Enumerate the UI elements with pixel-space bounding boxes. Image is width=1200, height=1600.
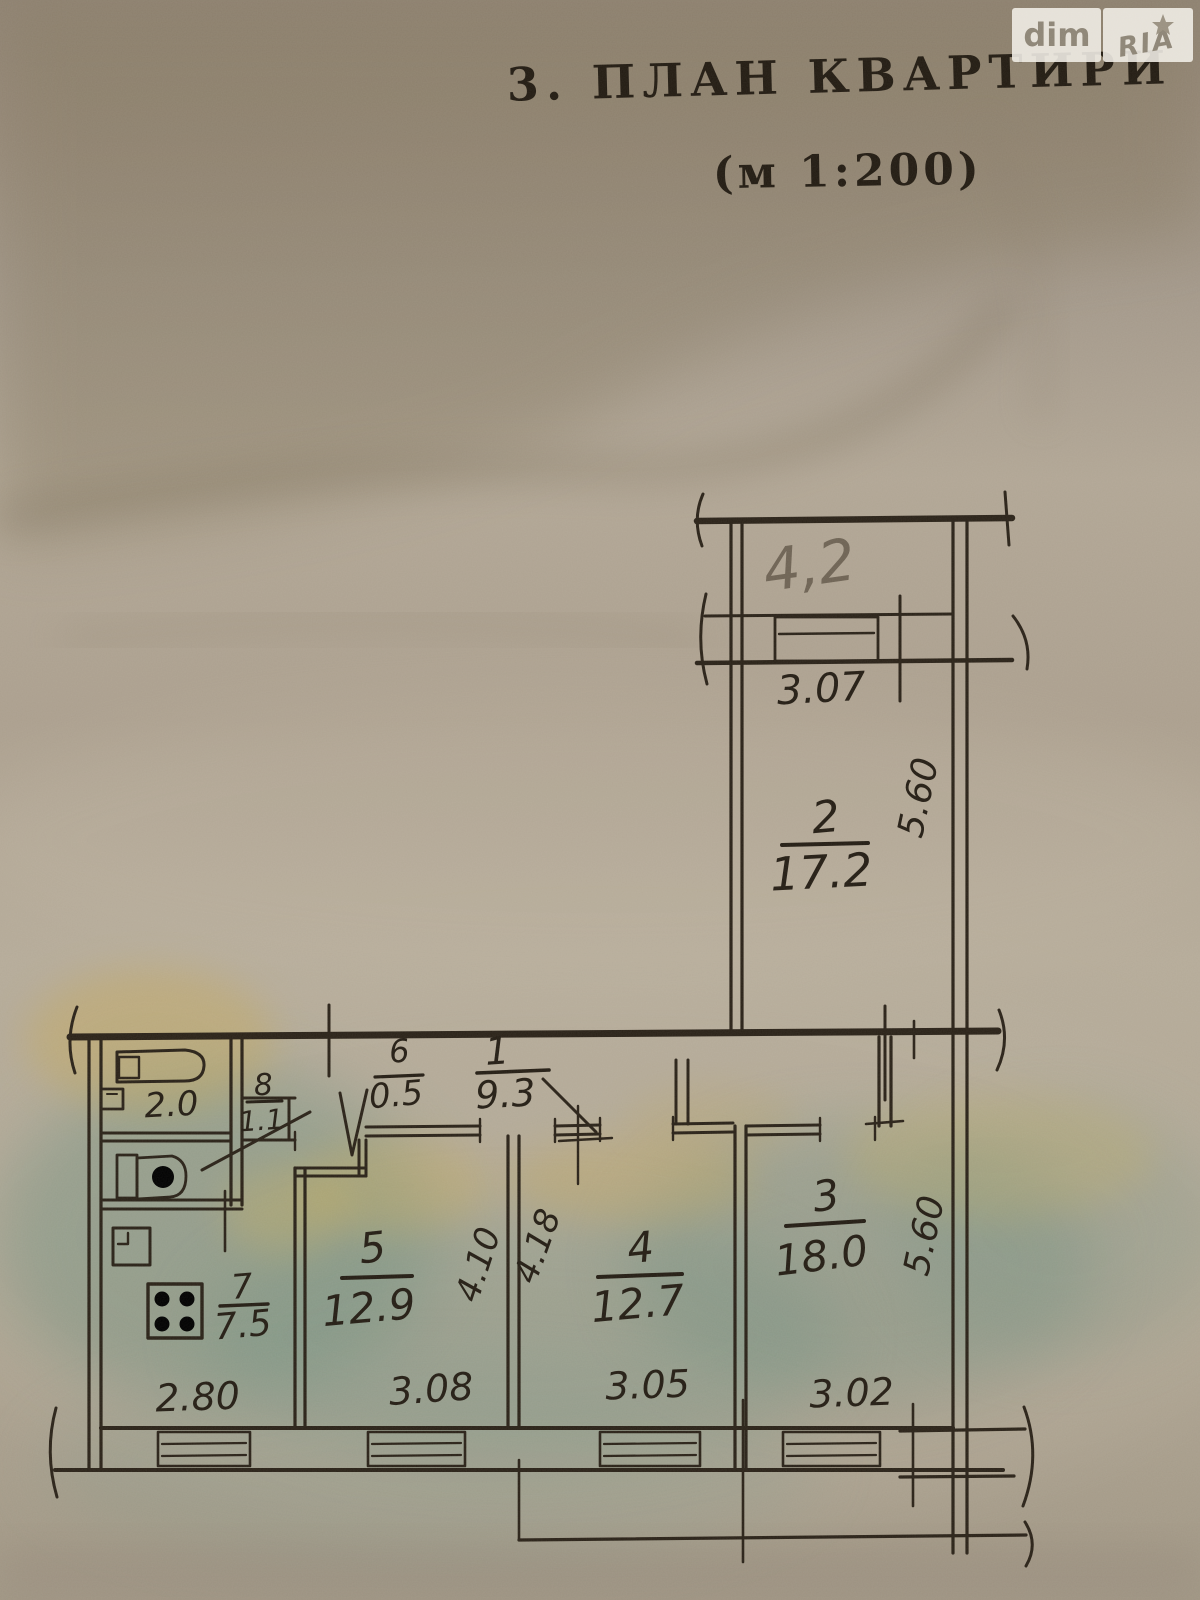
- paper-grain-overlay: [0, 0, 1200, 1600]
- scanned-floor-plan-photo: 3. ПЛАН КВАРТИРИ (м 1:200): [0, 0, 1200, 1600]
- floor-plan-canvas: 3. ПЛАН КВАРТИРИ (м 1:200): [0, 0, 1200, 1600]
